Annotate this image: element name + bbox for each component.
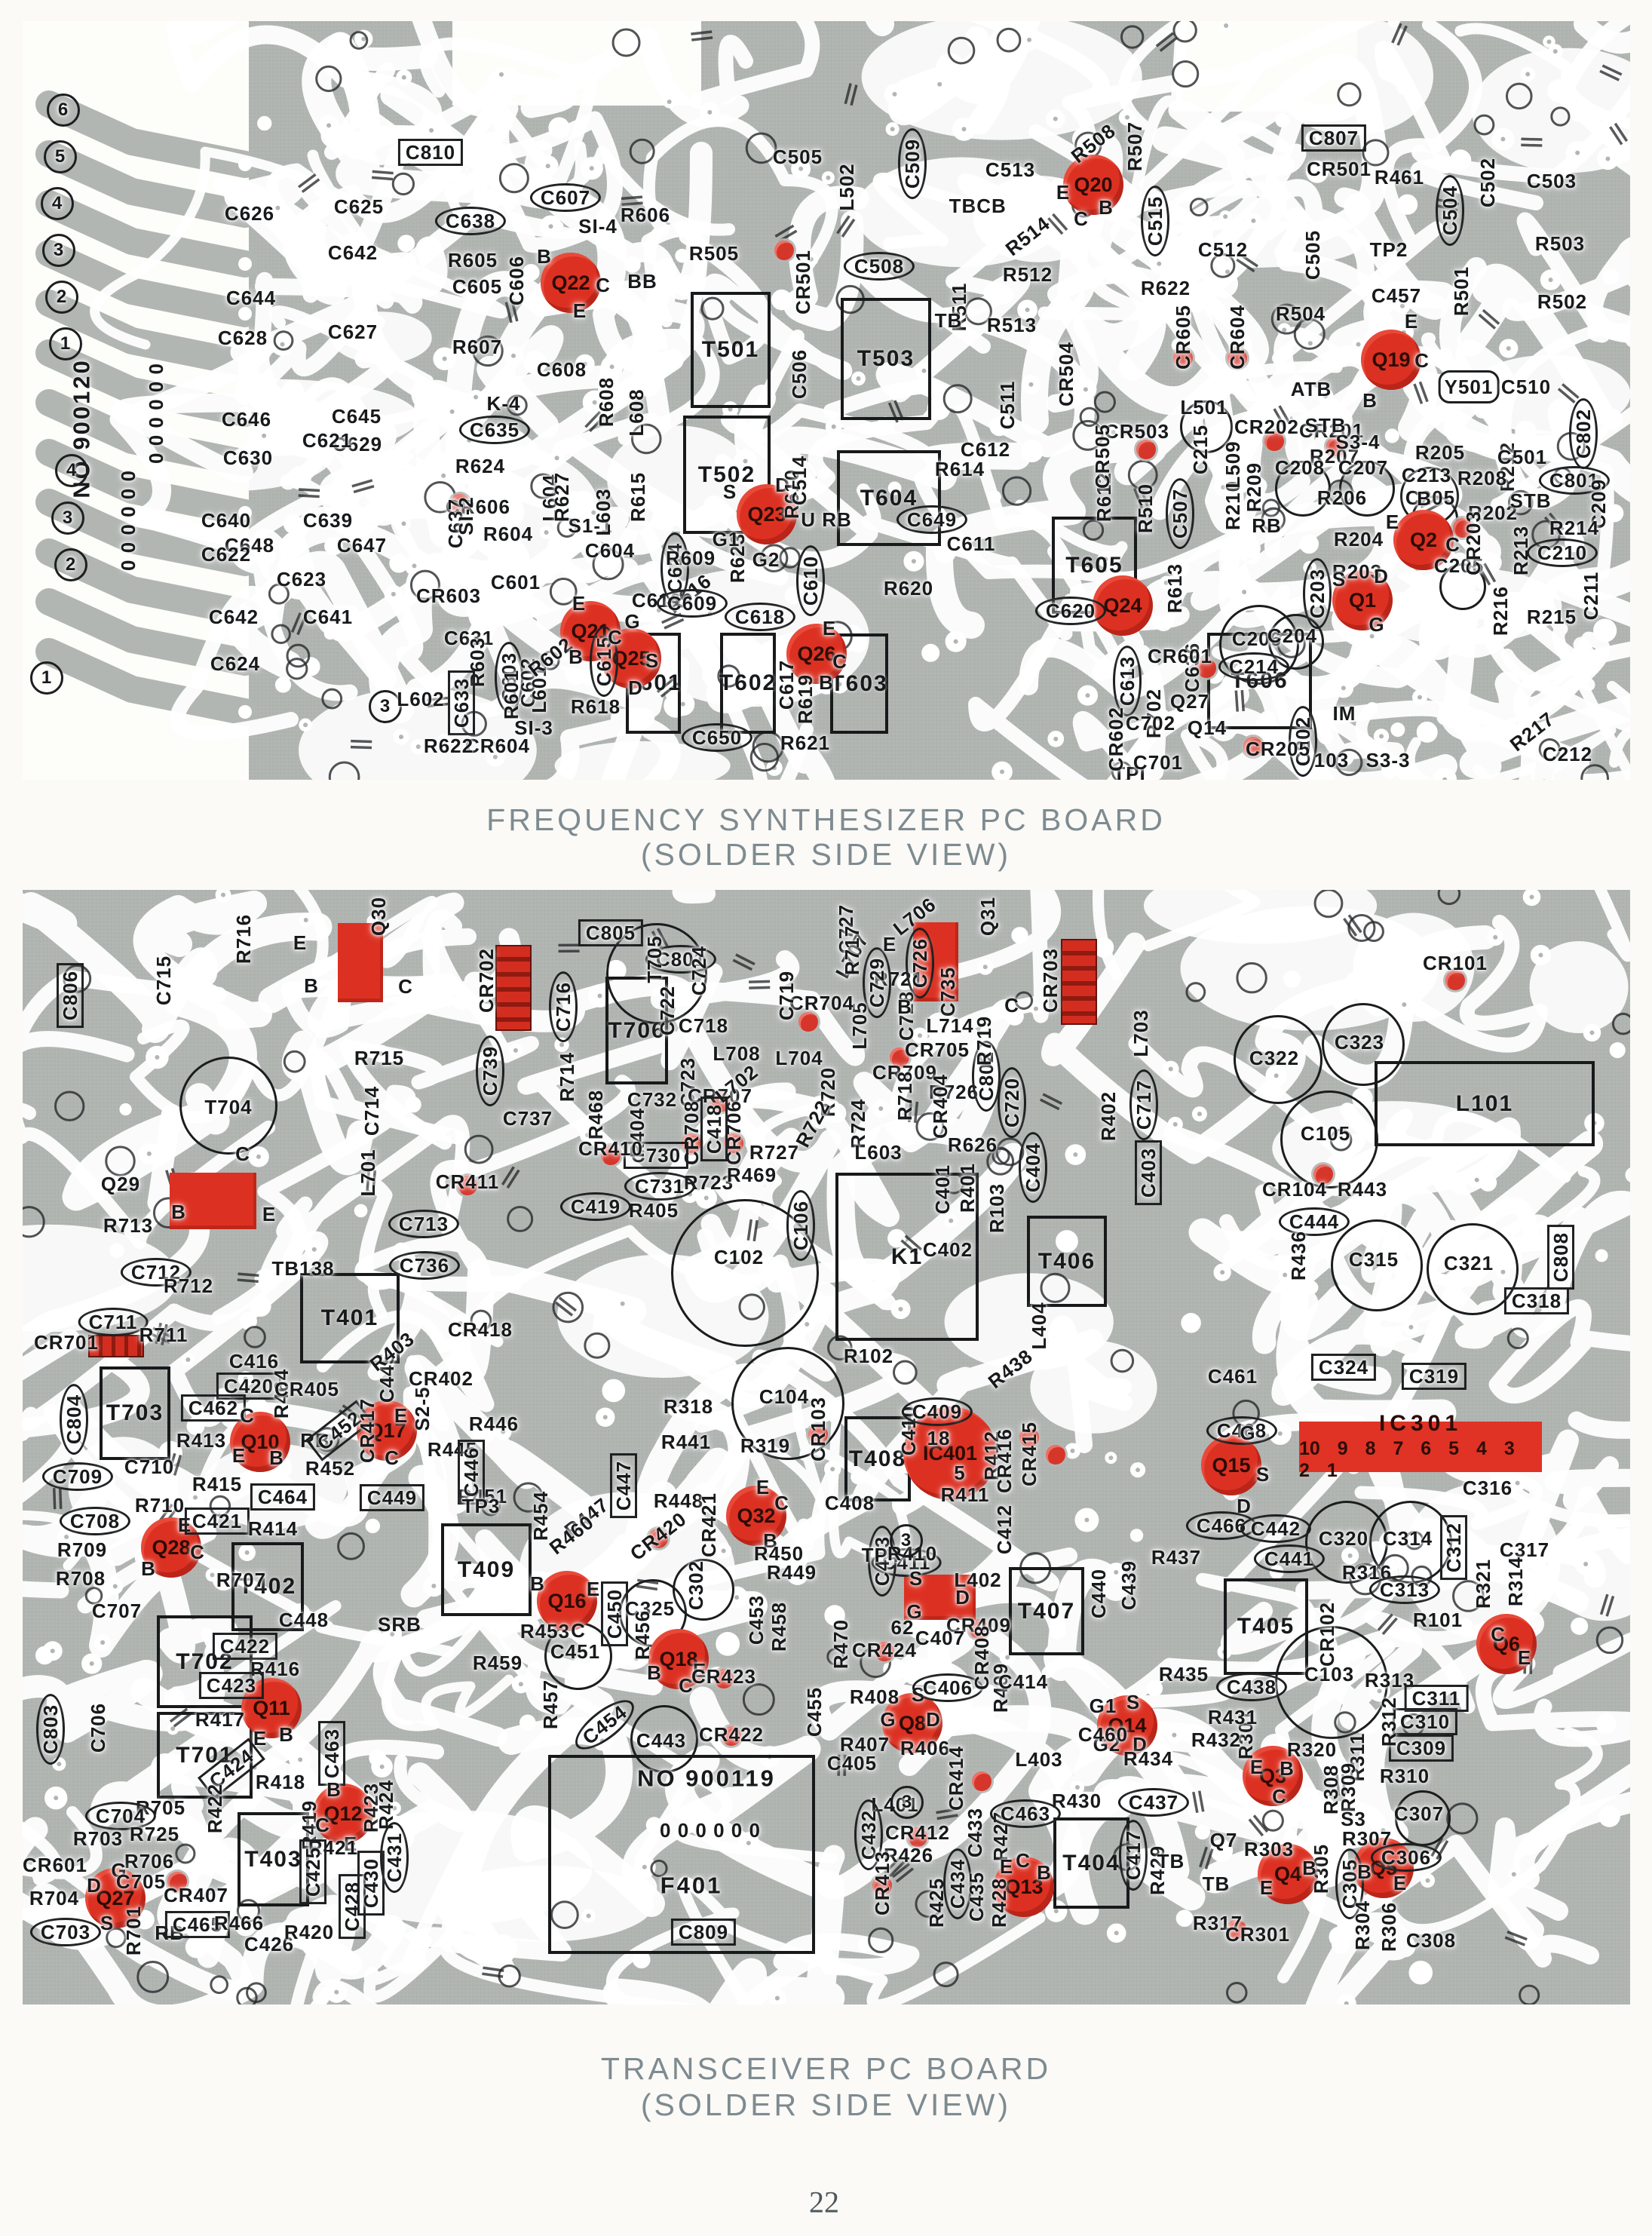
component-label-SI-2: SI-2	[456, 496, 476, 535]
component-label-R432: R432	[1191, 1730, 1241, 1750]
component-label-R441: R441	[661, 1432, 711, 1452]
component-label-C211: C211	[1581, 572, 1601, 621]
solder-pad	[1408, 1961, 1433, 1985]
solder-pad	[1596, 1713, 1617, 1734]
pad-hole	[1025, 308, 1030, 312]
component-label-C624: C624	[210, 654, 260, 673]
component-label-C425: C425	[299, 1839, 326, 1904]
pad-hole	[90, 1661, 94, 1666]
solder-pad	[819, 468, 831, 480]
pad-hole	[401, 521, 406, 526]
component-label-C431: C431	[380, 1822, 409, 1893]
capacitor-glyph	[893, 1864, 913, 1882]
component-label-CR410: CR410	[578, 1139, 643, 1158]
component-label-E: E	[1260, 1878, 1273, 1897]
component-label-Q14: Q14	[1188, 718, 1227, 738]
component-label-R303: R303	[1244, 1839, 1294, 1859]
component-label-C509: C509	[898, 128, 927, 199]
component-label-C321: C321	[1444, 1253, 1494, 1273]
transformer-label: T406	[1038, 1249, 1096, 1274]
component-label-R716: R716	[234, 914, 253, 964]
pad-hole	[334, 1990, 339, 1995]
component-label-S: S	[1126, 1692, 1140, 1712]
component-label-R457: R457	[541, 1679, 560, 1729]
component-label-D: D	[955, 1587, 970, 1607]
component-label-C610: C610	[796, 545, 825, 616]
diode-highlight-dot	[972, 1771, 992, 1791]
solder-pad	[354, 1204, 368, 1218]
pad-hole	[937, 82, 942, 87]
solder-pad	[1176, 1909, 1194, 1927]
component-label-C507: C507	[1166, 478, 1194, 549]
pad-hole	[1070, 1449, 1074, 1453]
component-label-C404: C404	[1019, 1132, 1047, 1203]
component-label-C512: C512	[1198, 240, 1248, 259]
solder-pad	[1593, 618, 1617, 642]
pad-hole	[1225, 269, 1230, 274]
component-label-C626: C626	[225, 204, 274, 223]
component-label-S3-3: S3-3	[1366, 750, 1411, 770]
component-label-CR501: CR501	[1307, 159, 1372, 179]
pad-hole	[519, 1682, 523, 1686]
component-label-B: B	[279, 1725, 294, 1744]
component-label-R456: R456	[633, 1610, 652, 1660]
solder-pad	[1610, 1042, 1626, 1058]
pad-hole	[734, 1595, 739, 1600]
solder-pad	[1390, 722, 1405, 737]
component-label-C802: C802	[1569, 398, 1598, 469]
pad-hole	[185, 1357, 190, 1362]
finger-pad	[238, 705, 252, 719]
component-label-R453: R453	[520, 1621, 570, 1641]
component-label-TP3: TP3	[462, 1496, 501, 1516]
pad-hole	[1125, 115, 1129, 120]
component-label-C: C	[190, 1542, 205, 1562]
solder-pad	[965, 26, 988, 50]
pad-hole	[429, 128, 434, 133]
component-label-CR418: CR418	[448, 1320, 513, 1339]
component-label-R458: R458	[769, 1602, 789, 1652]
component-label-C: C	[1272, 1787, 1287, 1806]
highlighted-transistor-Q20: Q20	[1063, 155, 1123, 215]
component-label-C511: C511	[998, 381, 1017, 430]
component-label-R507: R507	[1125, 121, 1145, 171]
component-label-CR703: CR703	[1041, 948, 1060, 1013]
transformer-label: K1	[891, 1244, 923, 1270]
pad-hole	[113, 1584, 118, 1588]
solder-pad	[1021, 440, 1044, 462]
component-label-C: C	[385, 1448, 400, 1468]
pad-hole	[603, 1415, 608, 1419]
pad-hole	[704, 1196, 709, 1201]
solder-pad	[257, 116, 271, 130]
pad-hole	[681, 702, 685, 707]
component-label-CR603: CR603	[416, 586, 481, 606]
component-label-C437: C437	[1118, 1788, 1189, 1817]
component-label-C: C	[1445, 535, 1460, 554]
component-label-R701: R701	[124, 1906, 143, 1955]
pad-hole	[303, 722, 308, 727]
component-label-L502: L502	[837, 163, 857, 210]
solder-pad	[716, 1632, 740, 1656]
component-label-R717: R717	[842, 925, 862, 975]
component-label-S3-4: S3-4	[1336, 432, 1381, 452]
pad-hole	[275, 206, 280, 210]
pad-hole	[511, 354, 516, 358]
solder-pad	[366, 1519, 380, 1533]
component-label-C208: C208	[1275, 458, 1325, 477]
component-label-C505: C505	[1303, 230, 1323, 280]
page-number: 22	[809, 2185, 839, 2220]
solder-pad	[281, 380, 304, 403]
component-label-C213: C213	[1402, 465, 1451, 485]
ic-pin-numbers: 10 9 8 7 6 5 4 3 2 1	[1299, 1438, 1542, 1482]
component-label-R703: R703	[73, 1829, 123, 1848]
transformer-label: T401	[321, 1305, 379, 1331]
component-label-CR411: CR411	[436, 1172, 500, 1192]
component-label-4: 4	[41, 187, 74, 220]
component-label-R430: R430	[1052, 1791, 1102, 1811]
component-label-C644: C644	[226, 288, 276, 308]
component-label-C408: C408	[825, 1493, 875, 1513]
synthesizer-caption-line1: FREQUENCY SYNTHESIZER PC BOARD	[0, 802, 1652, 838]
component-label-R502: R502	[1537, 292, 1587, 311]
pad-hole	[832, 425, 836, 429]
solder-pad	[1570, 104, 1587, 121]
component-label-STB: STB	[1510, 491, 1552, 511]
pad-hole	[1475, 1178, 1479, 1182]
component-label-R725: R725	[130, 1824, 179, 1844]
component-label-C315: C315	[1349, 1250, 1399, 1269]
pad-hole	[1583, 1562, 1588, 1566]
component-label-C737: C737	[503, 1109, 553, 1128]
component-label-C313: C313	[1369, 1575, 1440, 1604]
component-label-B: B	[1417, 489, 1432, 508]
solder-pad	[921, 644, 939, 662]
component-label-3: 3	[42, 234, 75, 267]
component-label-R420: R420	[284, 1922, 334, 1942]
component-label-B: B	[530, 1574, 545, 1593]
component-label-CR301: CR301	[1225, 1925, 1290, 1944]
transformer-outline-T501: T501	[691, 292, 771, 408]
component-label-Q29: Q29	[101, 1174, 140, 1194]
solder-pad	[1305, 1281, 1319, 1294]
component-label-C423: C423	[199, 1672, 264, 1699]
component-label-R437: R437	[1151, 1547, 1201, 1567]
pad-hole	[954, 640, 958, 644]
component-label-C319: C319	[1402, 1363, 1467, 1390]
pad-hole	[1575, 151, 1580, 155]
component-lead-ring	[1003, 477, 1030, 505]
component-label-R607: R607	[452, 337, 502, 357]
transformer-outline-L101: L101	[1375, 1061, 1595, 1146]
component-lead-ring	[1439, 890, 1460, 904]
component-label-C: C	[1491, 1624, 1506, 1644]
component-label-C713: C713	[388, 1210, 459, 1238]
component-label-C726: C726	[906, 928, 934, 998]
pad-hole	[193, 1495, 198, 1500]
component-label-C640: C640	[201, 511, 251, 530]
component-label-C: C	[832, 652, 847, 671]
component-label-R435: R435	[1159, 1664, 1209, 1684]
component-label-C612: C612	[961, 440, 1010, 459]
component-label-C647: C647	[337, 535, 387, 555]
component-label-B: B	[647, 1663, 662, 1682]
component-label-L501: L501	[1180, 397, 1228, 417]
pad-hole	[597, 994, 602, 998]
component-label-C715: C715	[154, 955, 173, 1005]
pad-hole	[402, 75, 406, 80]
pad-hole	[210, 1572, 215, 1577]
component-label-R452: R452	[305, 1458, 355, 1478]
component-label-C463: C463	[318, 1721, 345, 1786]
component-label-C514: C514	[789, 455, 809, 505]
component-label-C502: C502	[1478, 158, 1497, 207]
component-label-R621: R621	[780, 733, 830, 753]
solder-pad	[520, 1715, 536, 1731]
component-label-E: E	[293, 933, 307, 952]
component-label-3: 3	[890, 1524, 923, 1557]
component-label-R206: R206	[1317, 488, 1367, 508]
component-label-C504: C504	[1436, 175, 1464, 246]
component-label-CR421: CR421	[699, 1492, 719, 1557]
component-label-RB: RB	[1252, 516, 1282, 535]
pad-hole	[1512, 1872, 1516, 1876]
solder-pad	[275, 676, 291, 692]
component-label-C435: C435	[967, 1872, 986, 1922]
component-label-C714: C714	[362, 1086, 382, 1136]
component-label-C601: C601	[491, 572, 541, 592]
component-label-C628: C628	[218, 328, 268, 348]
pad-hole	[54, 1796, 58, 1800]
component-label-R608: R608	[596, 377, 616, 427]
pad-hole	[1242, 590, 1246, 594]
highlighted-transistor-Q19: Q19	[1361, 330, 1421, 390]
transformer-outline-T407: T407	[1009, 1567, 1084, 1655]
component-label-G: G	[624, 612, 640, 631]
finger-pad	[238, 257, 252, 271]
component-label-C460: C460	[1078, 1725, 1128, 1744]
component-lead-ring	[1122, 26, 1143, 48]
component-label-R405: R405	[629, 1201, 679, 1220]
solder-pad	[288, 466, 311, 489]
transformer-outline-T703: T703	[100, 1366, 170, 1460]
solder-pad	[314, 1056, 333, 1075]
component-label-E: E	[883, 934, 896, 954]
component-label-SI-4: SI-4	[578, 216, 618, 236]
component-label-Q27: Q27	[1170, 692, 1209, 711]
component-label-R709: R709	[57, 1540, 107, 1560]
component-label-R459: R459	[473, 1653, 523, 1673]
component-label-C639: C639	[303, 511, 353, 530]
component-label-F401: F401	[660, 1874, 723, 1897]
component-label-C649: C649	[896, 505, 967, 534]
component-label-E: E	[1518, 1648, 1531, 1667]
component-label-C409: C409	[902, 1397, 973, 1426]
pad-hole	[1589, 1030, 1594, 1035]
capacitor-glyph	[502, 1167, 519, 1188]
component-label-K-4: K-4	[487, 394, 521, 413]
component-lead-ring	[1095, 392, 1114, 412]
component-label-C203: C203	[1303, 558, 1332, 629]
pad-hole	[1538, 953, 1543, 958]
transformer-label: T409	[458, 1557, 515, 1583]
component-label-R418: R418	[256, 1772, 305, 1792]
component-label-R103: R103	[987, 1183, 1007, 1233]
component-lead-ring	[1613, 1014, 1630, 1034]
pad-hole	[544, 530, 549, 535]
component-label-C417: C417	[1119, 1820, 1148, 1891]
component-label-ATB: ATB	[1291, 379, 1332, 399]
component-label-R304: R304	[1353, 1900, 1372, 1950]
component-label-L403: L403	[1015, 1750, 1062, 1769]
transformer-outline-T409: T409	[441, 1523, 532, 1616]
component-label-S: S	[1256, 1465, 1270, 1484]
component-lead-ring	[508, 1207, 532, 1231]
component-label-L602: L602	[397, 689, 444, 709]
component-label-R312: R312	[1379, 1697, 1399, 1747]
solder-pad	[1417, 722, 1438, 743]
component-label-C464: C464	[250, 1483, 315, 1511]
pad-hole	[256, 1155, 261, 1159]
component-label-L714: L714	[926, 1016, 973, 1035]
component-label-C805: C805	[578, 919, 643, 946]
solder-pad	[1397, 195, 1418, 215]
pad-hole	[549, 224, 553, 229]
transformer-label: T604	[860, 486, 918, 511]
pad-hole	[983, 965, 988, 969]
pad-hole	[1157, 262, 1161, 266]
component-label-C735: C735	[938, 967, 958, 1017]
solder-pad	[1256, 51, 1274, 69]
component-label-L703: L703	[1131, 1009, 1151, 1057]
solder-pad	[314, 182, 328, 197]
transformer-label: T405	[1237, 1614, 1295, 1639]
component-label-C641: C641	[303, 607, 353, 627]
component-label-U-RB: U RB	[801, 510, 852, 529]
pad-hole	[722, 1549, 726, 1554]
component-label-R415: R415	[192, 1474, 242, 1494]
component-label-C439: C439	[1119, 1560, 1139, 1610]
component-label-R215: R215	[1527, 607, 1577, 627]
component-label-CR412: CR412	[885, 1823, 950, 1842]
capacitor-glyph	[845, 84, 857, 106]
component-label-R622: R622	[424, 736, 474, 756]
solder-pad	[284, 514, 303, 534]
component-label-C455: C455	[805, 1687, 824, 1737]
solder-pad	[1385, 428, 1399, 443]
component-label-E: E	[232, 1446, 246, 1465]
component-label-D: D	[87, 1876, 102, 1895]
pad-hole	[1083, 387, 1088, 391]
solder-pad	[109, 1243, 124, 1258]
component-label-C: C	[608, 627, 623, 647]
component-label-0-0-0-0-0-0: 0 0 0 0 0 0	[660, 1820, 761, 1840]
component-label-C627: C627	[328, 322, 378, 342]
trace-channel	[738, 21, 922, 24]
pad-hole	[1426, 1879, 1430, 1883]
pad-hole	[1054, 1909, 1059, 1913]
component-label-R402: R402	[1099, 1091, 1118, 1141]
component-label-C638: C638	[435, 207, 506, 235]
solder-pad	[397, 235, 415, 252]
component-label-C609: C609	[657, 589, 728, 618]
component-label-B: B	[1362, 391, 1378, 410]
component-label-R627: R627	[552, 472, 572, 522]
pad-hole	[1169, 1067, 1173, 1072]
component-label-C438: C438	[1216, 1673, 1287, 1701]
solder-pad	[1595, 1250, 1608, 1262]
component-label-C312: C312	[1440, 1515, 1467, 1580]
component-label-R606: R606	[621, 205, 670, 225]
pad-hole	[1549, 278, 1553, 282]
component-label-R712: R712	[164, 1276, 213, 1296]
component-label-R208: R208	[1457, 468, 1507, 488]
component-label-C: C	[1074, 209, 1089, 229]
transformer-outline-T406: T406	[1027, 1216, 1107, 1307]
component-label-C: C	[1016, 1851, 1031, 1870]
transformer-label: T403	[244, 1847, 302, 1873]
component-label-R622: R622	[1141, 278, 1191, 298]
component-label-G: G	[1368, 615, 1384, 634]
component-label-5: 5	[954, 1463, 965, 1483]
pad-hole	[559, 1042, 564, 1047]
component-label-CR501: CR501	[793, 250, 813, 314]
capacitor-glyph	[54, 1488, 61, 1509]
pad-hole	[912, 559, 916, 563]
component-label-R715: R715	[354, 1048, 404, 1068]
component-label-B: B	[819, 673, 834, 692]
component-label-C635: C635	[459, 416, 530, 444]
pad-hole	[1546, 39, 1551, 44]
pad-hole	[51, 1649, 55, 1653]
component-label-CR423: CR423	[691, 1667, 756, 1686]
component-label-C613: C613	[1113, 646, 1142, 716]
component-label-TB: TB	[935, 311, 963, 330]
component-label-R417: R417	[195, 1710, 245, 1729]
pad-hole	[1379, 734, 1384, 738]
component-label-C625: C625	[334, 197, 384, 216]
component-label-CR413: CR413	[872, 1851, 892, 1915]
component-label-C324: C324	[1311, 1354, 1376, 1381]
component-label-C810: C810	[398, 139, 463, 166]
component-label-R510: R510	[1136, 483, 1155, 533]
pad-hole	[1278, 1431, 1283, 1436]
pad-hole	[326, 123, 331, 127]
component-label-R503: R503	[1535, 234, 1585, 253]
component-label-CR505: CR505	[1093, 424, 1112, 489]
solder-pad	[1601, 409, 1623, 431]
component-label-R448: R448	[654, 1491, 703, 1511]
component-label-CR424: CR424	[852, 1640, 917, 1660]
component-label-R613: R613	[1165, 563, 1185, 613]
component-label-B: B	[1357, 1862, 1372, 1882]
capacitor-glyph	[559, 945, 580, 951]
component-lead-ring	[1520, 1986, 1539, 2004]
pad-hole	[1341, 686, 1346, 690]
component-label-R710: R710	[135, 1495, 185, 1515]
component-label-62: 62	[891, 1618, 915, 1637]
component-label-R443: R443	[1338, 1179, 1387, 1199]
component-label-G1: G1	[713, 529, 740, 549]
component-label-G2: G2	[752, 550, 780, 569]
component-label-E: E	[1056, 182, 1070, 202]
component-label-CR405: CR405	[274, 1379, 339, 1399]
component-label-Q7: Q7	[1210, 1830, 1238, 1850]
component-label-E: E	[1393, 1873, 1407, 1893]
component-label-C401: C401	[933, 1164, 952, 1214]
component-label-R609: R609	[666, 548, 716, 568]
